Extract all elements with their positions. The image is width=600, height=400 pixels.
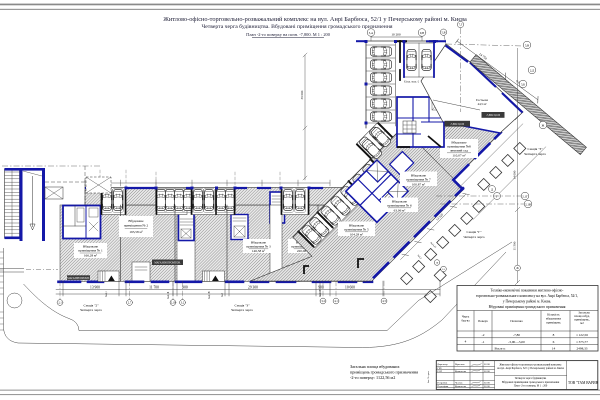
svg-text:буд-ва: буд-ва (461, 319, 470, 323)
svg-text:Четверта черга: Четверта черга (80, 308, 102, 312)
svg-text:13 900: 13 900 (90, 285, 100, 289)
svg-text:2,10: 2,10 (171, 302, 176, 305)
svg-text:Вбудовані приміщення громадськ: Вбудовані приміщення громадського призна… (502, 381, 560, 384)
svg-text:Секція "З": Секція "З" (527, 147, 543, 151)
svg-text:Кравченко: Кравченко (455, 385, 467, 388)
svg-text:02.08: 02.08 (484, 385, 490, 388)
svg-text:приміщення № 1: приміщення № 1 (78, 249, 103, 253)
svg-text:Всього:: Всього: (495, 347, 506, 351)
svg-text:-2: -2 (482, 333, 485, 337)
svg-text:Поверх: Поверх (478, 319, 488, 323)
svg-text:Загальна площа вбудованих: Загальна площа вбудованих (350, 364, 400, 369)
svg-text:приміщень: приміщень (546, 321, 561, 325)
svg-text:Четверта черга: Четверта черга (524, 152, 546, 156)
svg-text:Д: Д (491, 187, 493, 191)
svg-text:Четверта черга будівництва: Четверта черга будівництва (515, 377, 547, 380)
svg-text:Ж: Ж (542, 123, 545, 127)
svg-text:Позначка: Позначка (510, 319, 523, 323)
svg-text:приміщення № 3: приміщення № 3 (246, 245, 271, 249)
svg-text:900: 900 (182, 285, 188, 289)
svg-text:приміщення № 2: приміщення № 2 (124, 224, 149, 228)
svg-text:11 500: 11 500 (513, 241, 517, 250)
svg-text:-7,800/-8,100: -7,800/-8,100 (486, 114, 501, 117)
svg-text:приміщення № 6: приміщення № 6 (387, 204, 412, 208)
svg-text:14 000: 14 000 (513, 170, 517, 179)
svg-text:Вірченко: Вірченко (455, 363, 465, 366)
svg-text:02.08: 02.08 (484, 370, 490, 373)
svg-text:Четверта черга: Четверта черга (231, 308, 253, 312)
svg-text:10 200: 10 200 (391, 33, 401, 37)
svg-text:Вбудовані приміщення громадськ: Вбудовані приміщення громадського призна… (489, 305, 566, 309)
svg-text:№4,1В: №4,1В (208, 291, 211, 299)
svg-text:у Печерському районі м. Києва.: у Печерському районі м. Києва. (503, 300, 552, 304)
svg-text:Вбудоване: Вбудоване (128, 219, 144, 223)
svg-text:5,В: 5,В (442, 31, 446, 34)
svg-text:10 600: 10 600 (345, 285, 355, 289)
svg-text:Секція "Г": Секція "Г" (467, 230, 483, 234)
svg-text:02.08: 02.08 (484, 363, 490, 366)
svg-text:МАГАЗИН ПРОМТ.: МАГАЗИН ПРОМТ. (67, 277, 90, 280)
svg-text:на вул. Анрі Барбюса, 52/1 у П: на вул. Анрі Барбюса, 52/1 у Печерському… (497, 367, 565, 370)
svg-text:4: 4 (465, 340, 467, 344)
svg-text:7,Г: 7,Г (459, 24, 463, 27)
svg-text:14: 14 (552, 347, 556, 351)
svg-text:8: 8 (553, 333, 555, 337)
svg-text:36 000: 36 000 (300, 90, 304, 99)
svg-text:-1: -1 (482, 340, 485, 344)
svg-text:Директор: Директор (437, 363, 448, 366)
svg-text:Четверта черга: Четверта черга (463, 235, 485, 239)
svg-text:План -2-го поверху, М 1 : 200: План -2-го поверху, М 1 : 200 (514, 385, 548, 388)
svg-text:приміщення № 5: приміщення № 5 (344, 228, 369, 232)
svg-text:Перевірив: Перевірив (437, 385, 449, 388)
svg-text:Житлово-офісно-торговельно-роз: Житлово-офісно-торговельно-розважальний … (163, 16, 467, 23)
svg-text:ГАП: ГАП (437, 370, 442, 373)
svg-text:ТОВ "ТАМ ВАРИВ: ТОВ "ТАМ ВАРИВ (568, 381, 599, 385)
svg-text:МАГАЗИН ПРОМТОВ.: МАГАЗИН ПРОМТОВ. (154, 262, 181, 265)
svg-text:Г: Г (496, 194, 498, 198)
svg-text:м2: м2 (580, 321, 584, 325)
svg-text:зимовий сад: зимовий сад (450, 149, 468, 153)
svg-text:11 700: 11 700 (149, 285, 159, 289)
svg-text:Кравченко: Кравченко (455, 370, 467, 373)
svg-text:приміщень громадського признач: приміщень громадського призначення (350, 370, 418, 375)
svg-text:№4,1: №4,1 (105, 291, 108, 297)
svg-text:6: 6 (553, 340, 555, 344)
svg-text:Секція "З": Секція "З" (234, 304, 250, 308)
svg-text:Кільк. маш.-2: Кільк. маш.-2 (404, 81, 420, 84)
svg-text:-7,800/-8,100: -7,800/-8,100 (450, 123, 465, 126)
svg-text:1А: 1А (442, 268, 445, 271)
svg-text:приміщення № 7: приміщення № 7 (406, 178, 431, 182)
svg-text:Секція "2": Секція "2" (83, 304, 99, 308)
svg-text:№4,1Г: №4,1Г (319, 289, 322, 297)
svg-text:Техніко-економічні показники ж: Техніко-економічні показники житлово-офі… (490, 289, 564, 293)
svg-text:Четверта черга будівництва. Вб: Четверта черга будівництва. Вбудовані пр… (202, 23, 393, 30)
svg-text:29 300: 29 300 (248, 285, 258, 289)
svg-text:Інв. № ориг.: Інв. № ориг. (427, 370, 430, 383)
svg-text:№4,1Б: №4,1Б (167, 291, 170, 299)
